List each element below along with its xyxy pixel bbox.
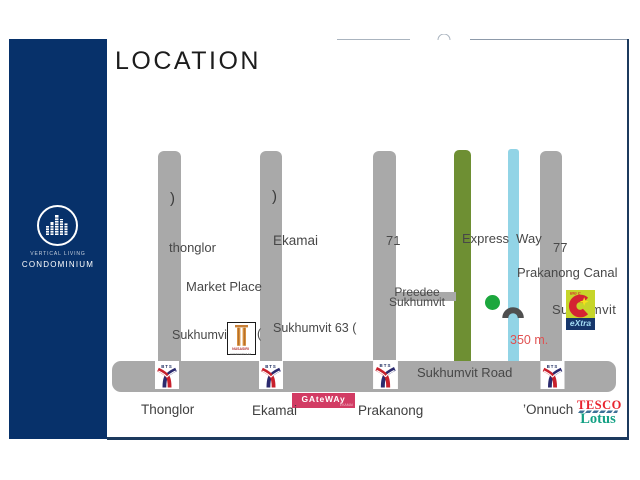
svg-text:BTS: BTS <box>380 363 392 368</box>
svg-text:BTS: BTS <box>161 364 173 369</box>
svg-text:BTS: BTS <box>265 364 277 369</box>
svg-text:BTS: BTS <box>547 364 559 369</box>
